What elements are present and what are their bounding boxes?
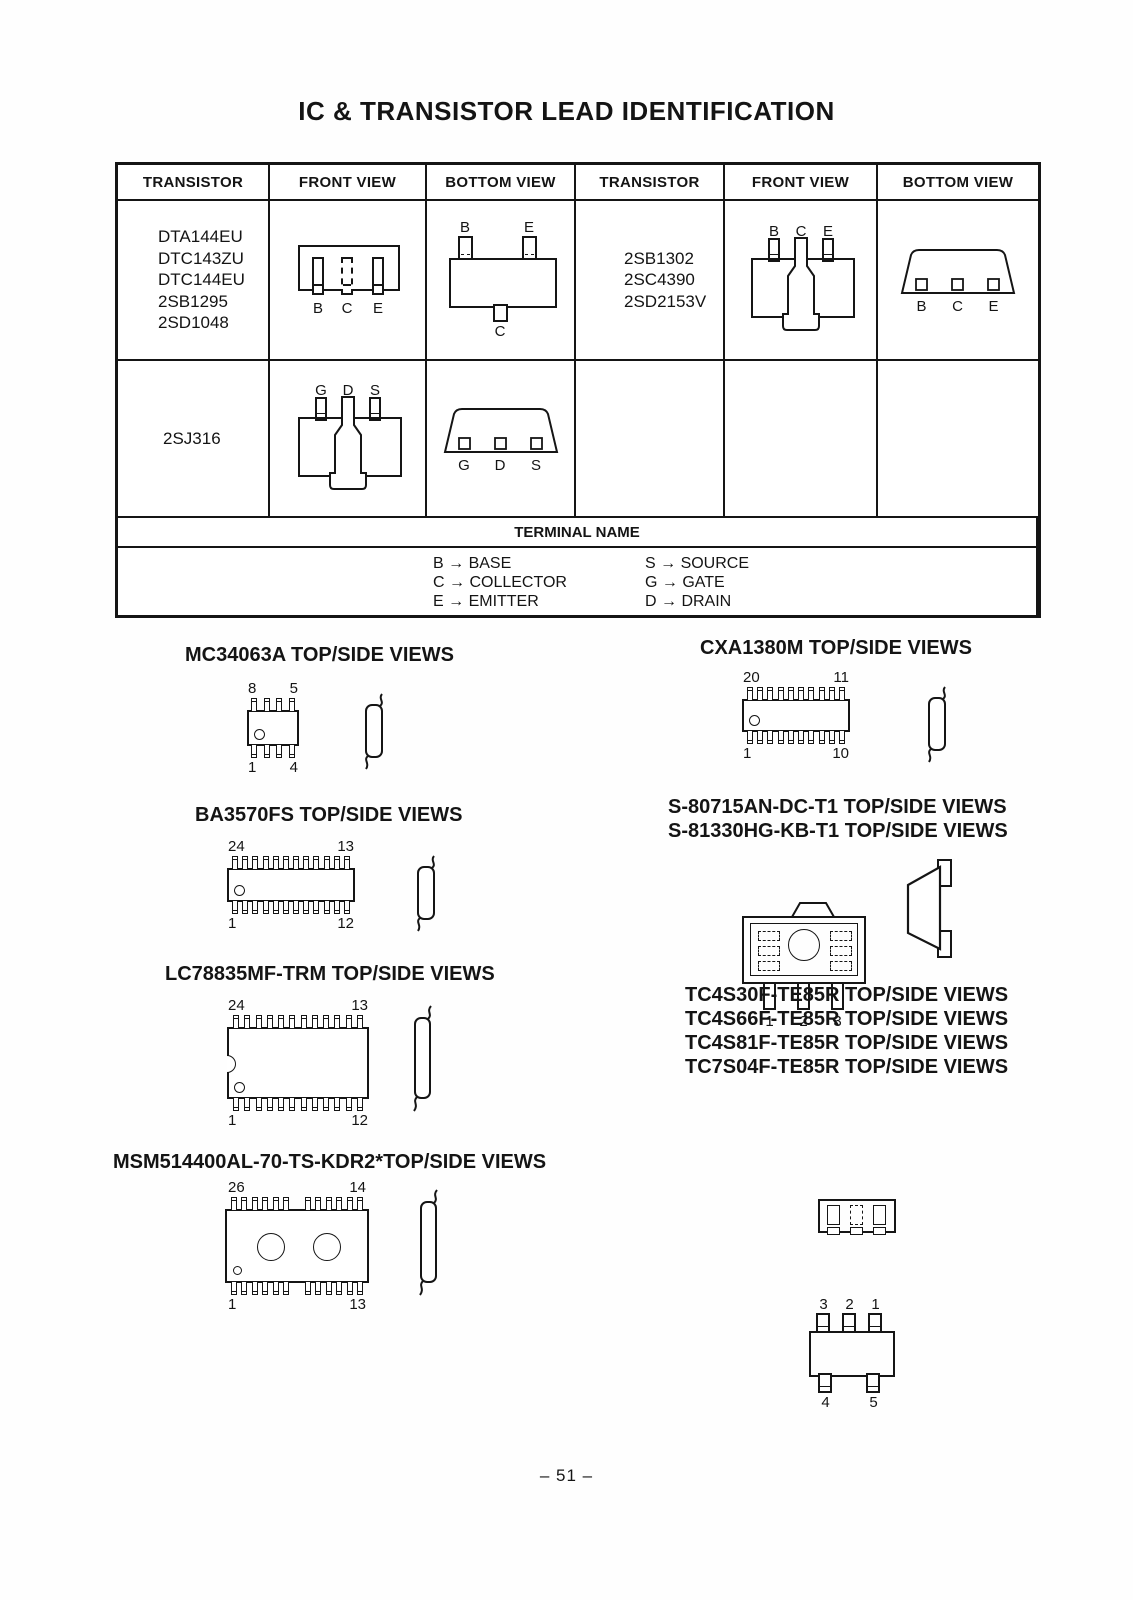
pin-number: 5 (865, 1395, 882, 1410)
package-body (227, 868, 355, 902)
mc34063a-side-view (355, 693, 393, 773)
cell-group3-part: 2SJ316 (118, 361, 270, 518)
section-title: LC78835MF-TRM TOP/SIDE VIEWS (165, 962, 605, 986)
group1-part-list: DTA144EU DTC143ZU DTC144EU 2SB1295 2SD10… (118, 226, 268, 334)
section-mc34063a: MC34063A TOP/SIDE VIEWS 85 14 (185, 643, 605, 793)
part-name: 2SJ316 (163, 428, 268, 450)
center-circle (788, 929, 820, 961)
section-cxa1380m: CXA1380M TOP/SIDE VIEWS 2011 110 (700, 636, 1100, 786)
large-hole (257, 1233, 285, 1261)
lead-pin-dashed (341, 257, 353, 295)
terminal-definition: G → GATE (645, 573, 749, 592)
pin-label: E (985, 299, 1002, 314)
tc4s-top-view (818, 1199, 898, 1241)
pin1-index-dot (254, 729, 265, 740)
lead-pin (458, 236, 473, 260)
cell-empty (725, 361, 878, 518)
cell-empty (878, 361, 1038, 518)
pin1-index-dot (233, 1266, 242, 1275)
large-hole (313, 1233, 341, 1261)
part-name: DTC144EU (158, 269, 268, 291)
inner-pad (827, 1205, 840, 1225)
msm514400-side-view (411, 1188, 445, 1300)
pin-number: 4 (290, 760, 298, 775)
pin-number: 20 (743, 670, 760, 685)
pin-number: 10 (832, 746, 849, 761)
package-outline (431, 400, 571, 456)
terminal-definition: D → DRAIN (645, 592, 749, 611)
lead-pin (312, 257, 324, 295)
cell-group2-parts: 2SB1302 2SC4390 2SD2153V (576, 201, 725, 361)
part-name: 2SB1295 (158, 291, 268, 313)
col-header-front-view-2: FRONT VIEW (725, 165, 878, 201)
section-s80715: S-80715AN-DC-T1 TOP/SIDE VIEWS S-81330HG… (668, 795, 1088, 975)
center-lead-tab (736, 224, 866, 336)
pin-number: 1 (743, 746, 751, 761)
lead-foot (873, 1227, 886, 1235)
pin-number: 1 (867, 1297, 884, 1312)
edge-notch (227, 1055, 236, 1073)
section-lc78835: LC78835MF-TRM TOP/SIDE VIEWS 2413 112 (165, 962, 605, 1142)
pin-label: B (310, 301, 327, 316)
pin-row-bottom (232, 900, 350, 914)
lead-pin (372, 257, 384, 295)
package-tab (790, 901, 836, 917)
pin-label: D (492, 458, 509, 473)
dashed-pad (758, 931, 780, 941)
terminal-definition: E → EMITTER (433, 592, 567, 611)
lead-pin (522, 236, 537, 260)
cxa1380m-side-view (918, 686, 956, 766)
dashed-pad (758, 946, 780, 956)
cell-group1-parts: DTA144EU DTC143ZU DTC144EU 2SB1295 2SD10… (118, 201, 270, 361)
lead-foot (850, 1227, 863, 1235)
lc78835-top-view: 2413 112 (227, 996, 369, 1130)
terminal-name-body: B → BASE C → COLLECTOR E → EMITTER S → S… (118, 548, 1038, 615)
pin-number: 1 (228, 1113, 236, 1128)
dashed-pad (758, 961, 780, 971)
pin-row-top (233, 1015, 363, 1029)
lead-pin (818, 1373, 832, 1393)
inner-pad-dashed (850, 1205, 863, 1225)
cell-group2-bottom-view: B C E (878, 201, 1038, 361)
package-body (449, 258, 557, 308)
section-title: MSM514400AL-70-TS-KDR2*TOP/SIDE VIEWS (113, 1150, 583, 1174)
power-bottom-view-diagram: B C E (888, 241, 1028, 319)
section-title: MC34063A TOP/SIDE VIEWS (185, 643, 605, 667)
pin-row-bottom (251, 744, 295, 758)
package-body (227, 1027, 369, 1099)
section-title: BA3570FS TOP/SIDE VIEWS (195, 803, 615, 827)
col-header-transistor-1: TRANSISTOR (118, 165, 270, 201)
pin-number: 3 (815, 1297, 832, 1312)
pin-row-top (251, 698, 295, 712)
pin-number: 13 (337, 839, 354, 854)
s80715-side-view (898, 857, 958, 961)
center-lead-tab (283, 383, 413, 495)
pin-number: 5 (290, 681, 298, 696)
section-title: TC4S81F-TE85R TOP/SIDE VIEWS (685, 1031, 1105, 1055)
package-outline (888, 241, 1028, 297)
pin-label: S (528, 458, 545, 473)
power-bottom-view-diagram: G D S (431, 400, 571, 478)
pin-label: B (913, 299, 930, 314)
group2-part-list: 2SB1302 2SC4390 2SD2153V (576, 248, 723, 313)
pin-label: E (370, 301, 387, 316)
part-name: 2SC4390 (624, 269, 723, 291)
terminal-name-header: TERMINAL NAME (118, 518, 1038, 548)
mc34063a-top-view: 85 14 (247, 679, 299, 777)
scanned-manual-page: IC & TRANSISTOR LEAD IDENTIFICATION TRAN… (0, 0, 1133, 1600)
package-body (742, 916, 866, 984)
pin-row-top (747, 687, 845, 701)
pin-number: 24 (228, 998, 245, 1013)
pin-number: 13 (349, 1297, 366, 1312)
pin-number: 24 (228, 839, 245, 854)
pin-label: B (457, 220, 474, 235)
tc4s-front-view: 3 2 1 4 5 (785, 1297, 915, 1411)
pin-label: E (521, 220, 538, 235)
inner-pad (873, 1205, 886, 1225)
pin-number: 14 (349, 1180, 366, 1195)
pin-row-top (232, 856, 350, 870)
page-title: IC & TRANSISTOR LEAD IDENTIFICATION (0, 96, 1133, 127)
pin-group (305, 1197, 363, 1211)
lead-pin (493, 304, 508, 322)
pin-number: 26 (228, 1180, 245, 1195)
pin-group (305, 1281, 363, 1295)
pin-number: 13 (351, 998, 368, 1013)
cell-group3-front-view: G D S (270, 361, 427, 518)
package-body (742, 699, 850, 732)
lead-pin (842, 1313, 856, 1333)
col-header-bottom-view-2: BOTTOM VIEW (878, 165, 1038, 201)
sot-front-view-diagram: B C E (288, 237, 408, 323)
pin-group (231, 1197, 289, 1211)
dashed-pad (830, 931, 852, 941)
terminal-definitions-right: S → SOURCE G → GATE D → DRAIN (645, 554, 749, 611)
pin-number: 2 (841, 1297, 858, 1312)
lc78835-side-view (405, 1004, 439, 1116)
lead-pin (868, 1313, 882, 1333)
power-front-view-diagram: B C E (736, 224, 866, 336)
pin-number: 4 (817, 1395, 834, 1410)
power-front-view-diagram: G D S (283, 383, 413, 495)
cxa1380m-top-view: 2011 110 (742, 668, 850, 763)
pin-row-bottom (231, 1281, 363, 1295)
dashed-pad (830, 946, 852, 956)
cell-group2-front-view: B C E (725, 201, 878, 361)
lead-pin (816, 1313, 830, 1333)
pin-number: 1 (228, 916, 236, 931)
section-title: TC4S30F-TE85R TOP/SIDE VIEWS (685, 983, 1105, 1007)
msm514400-top-view: 2614 113 (225, 1178, 369, 1314)
section-title: S-80715AN-DC-T1 TOP/SIDE VIEWS (668, 795, 1088, 819)
package-body (247, 710, 299, 746)
col-header-transistor-2: TRANSISTOR (576, 165, 725, 201)
sot-bottom-view-diagram: B E C (435, 220, 567, 340)
cell-group1-front-view: B C E (270, 201, 427, 361)
part-name: 2SD1048 (158, 312, 268, 334)
ba3570fs-top-view: 2413 112 (227, 837, 355, 933)
part-name: DTA144EU (158, 226, 268, 248)
cell-empty (576, 361, 725, 518)
section-title: TC4S66F-TE85R TOP/SIDE VIEWS (685, 1007, 1105, 1031)
package-body (809, 1331, 895, 1377)
lead-pin (866, 1373, 880, 1393)
pin-number: 12 (337, 916, 354, 931)
pin-label: G (456, 458, 473, 473)
pin-row-bottom (233, 1097, 363, 1111)
section-tc4s: TC4S30F-TE85R TOP/SIDE VIEWS TC4S66F-TE8… (685, 983, 1105, 1303)
pin-label: C (339, 301, 356, 316)
lead-id-table: TRANSISTOR FRONT VIEW BOTTOM VIEW TRANSI… (115, 162, 1041, 618)
pin-number: 12 (351, 1113, 368, 1128)
col-header-bottom-view-1: BOTTOM VIEW (427, 165, 576, 201)
terminal-definitions-left: B → BASE C → COLLECTOR E → EMITTER (433, 554, 567, 611)
pin-number: 11 (833, 670, 849, 685)
pin-label: C (492, 324, 509, 339)
terminal-definition: B → BASE (433, 554, 567, 573)
pin-row-bottom (747, 730, 845, 744)
terminal-definition: C → COLLECTOR (433, 573, 567, 592)
terminal-definition: S → SOURCE (645, 554, 749, 573)
pin1-index-dot (749, 715, 760, 726)
section-title: S-81330HG-KB-T1 TOP/SIDE VIEWS (668, 819, 1088, 843)
part-name: 2SB1302 (624, 248, 723, 270)
pin-number: 1 (248, 760, 256, 775)
cell-group3-bottom-view: G D S (427, 361, 576, 518)
section-ba3570fs: BA3570FS TOP/SIDE VIEWS 2413 112 (195, 803, 615, 963)
pin1-index-dot (234, 1082, 245, 1093)
section-msm514400: MSM514400AL-70-TS-KDR2*TOP/SIDE VIEWS 26… (113, 1150, 583, 1350)
group3-part-list: 2SJ316 (118, 428, 268, 450)
lead-foot (827, 1227, 840, 1235)
ba3570fs-side-view (407, 855, 445, 935)
part-name: DTC143ZU (158, 248, 268, 270)
package-body (225, 1209, 369, 1283)
cell-group1-bottom-view: B E C (427, 201, 576, 361)
page-number: – 51 – (0, 1466, 1133, 1486)
pin-number: 8 (248, 681, 256, 696)
pin-group (231, 1281, 289, 1295)
part-name: 2SD2153V (624, 291, 723, 313)
col-header-front-view-1: FRONT VIEW (270, 165, 427, 201)
section-title: TC7S04F-TE85R TOP/SIDE VIEWS (685, 1055, 1105, 1079)
pin1-index-dot (234, 885, 245, 896)
pin-label: C (949, 299, 966, 314)
section-title: CXA1380M TOP/SIDE VIEWS (700, 636, 1100, 660)
dashed-pad (830, 961, 852, 971)
pin-number: 1 (228, 1297, 236, 1312)
